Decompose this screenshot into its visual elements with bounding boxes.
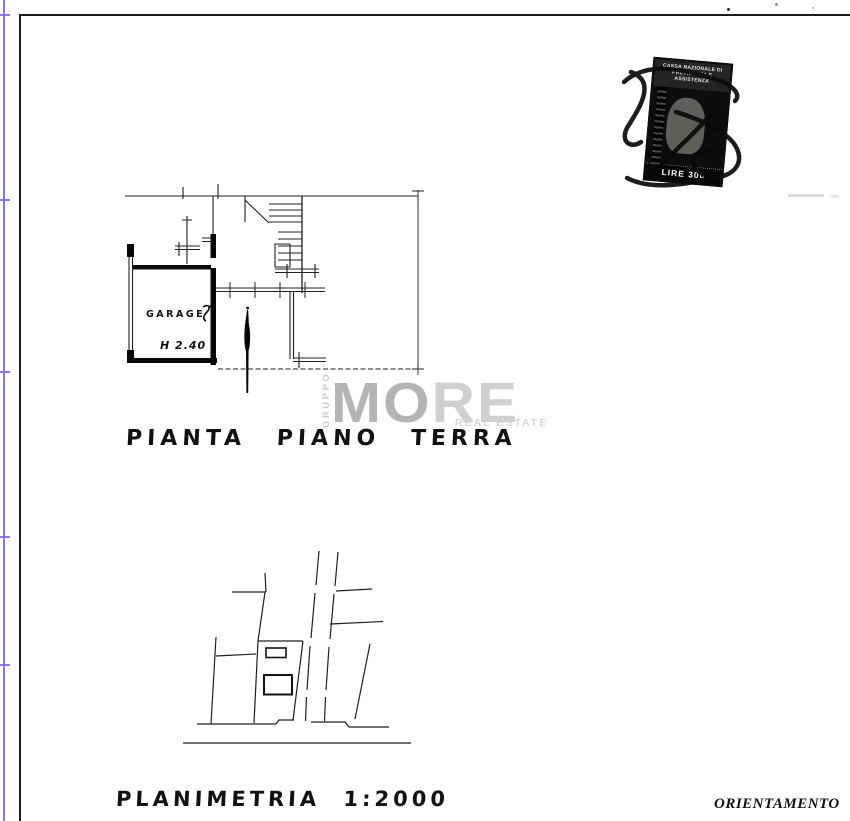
site-plan-caption: PLANIMETRIA 1:2000 (115, 787, 449, 811)
revenue-stamp: CASSA NAZIONALE DI PREVIDENZA E ASSISTEN… (616, 50, 756, 198)
floor-plan-annotations: GARAGE H 2.40 (146, 306, 211, 353)
page-border-top (19, 14, 850, 16)
scan-speck (775, 3, 778, 6)
scanner-edge-tick (0, 14, 10, 16)
scan-speck (727, 8, 730, 11)
road-lines (306, 551, 339, 721)
page-border-left (19, 14, 21, 821)
scanner-edge-tick (0, 371, 10, 373)
signature-scribble (616, 50, 756, 198)
flourish-dot (209, 306, 211, 308)
scan-speck (812, 7, 814, 9)
building-footprints (264, 648, 292, 695)
scanner-edge-tick (0, 199, 10, 201)
floor-plan-caption: PIANTA PIANO TERRA (125, 426, 517, 451)
height-annotation: H 2.40 (160, 339, 206, 352)
scanner-edge-tick (0, 664, 10, 666)
parcel-boundaries (183, 573, 411, 743)
orientation-label: ORIENTAMENTO (714, 796, 840, 813)
garage-room-label: GARAGE (146, 309, 205, 320)
scanner-edge-tick (0, 536, 10, 538)
watermark-mo: MO (331, 371, 432, 434)
floor-plan-drawing: GARAGE H 2.40 (118, 180, 438, 400)
scan-smudge (830, 195, 839, 198)
scanner-edge-line (3, 0, 5, 821)
scan-smudge (788, 194, 824, 197)
site-plan-drawing (178, 543, 418, 753)
north-arrow (244, 307, 250, 393)
